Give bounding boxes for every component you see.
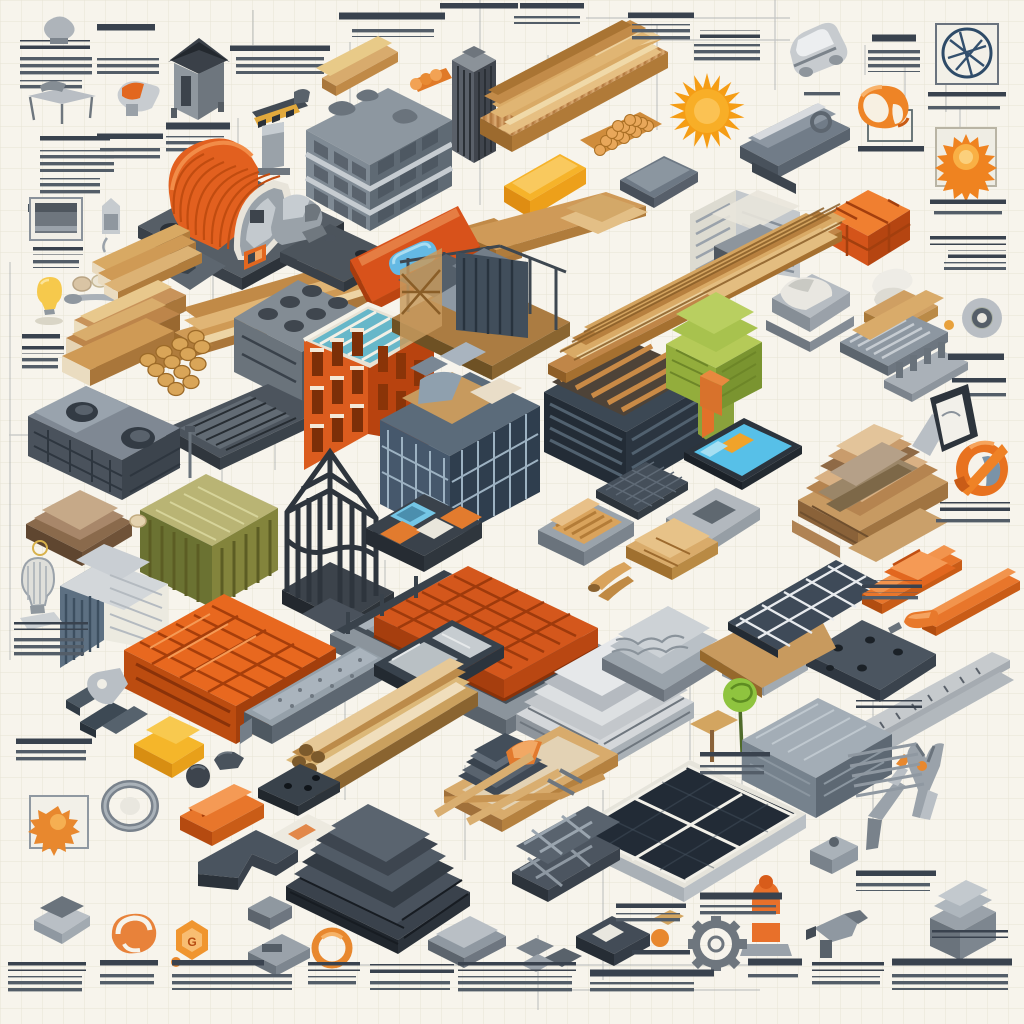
svg-text:G: G (187, 935, 196, 949)
